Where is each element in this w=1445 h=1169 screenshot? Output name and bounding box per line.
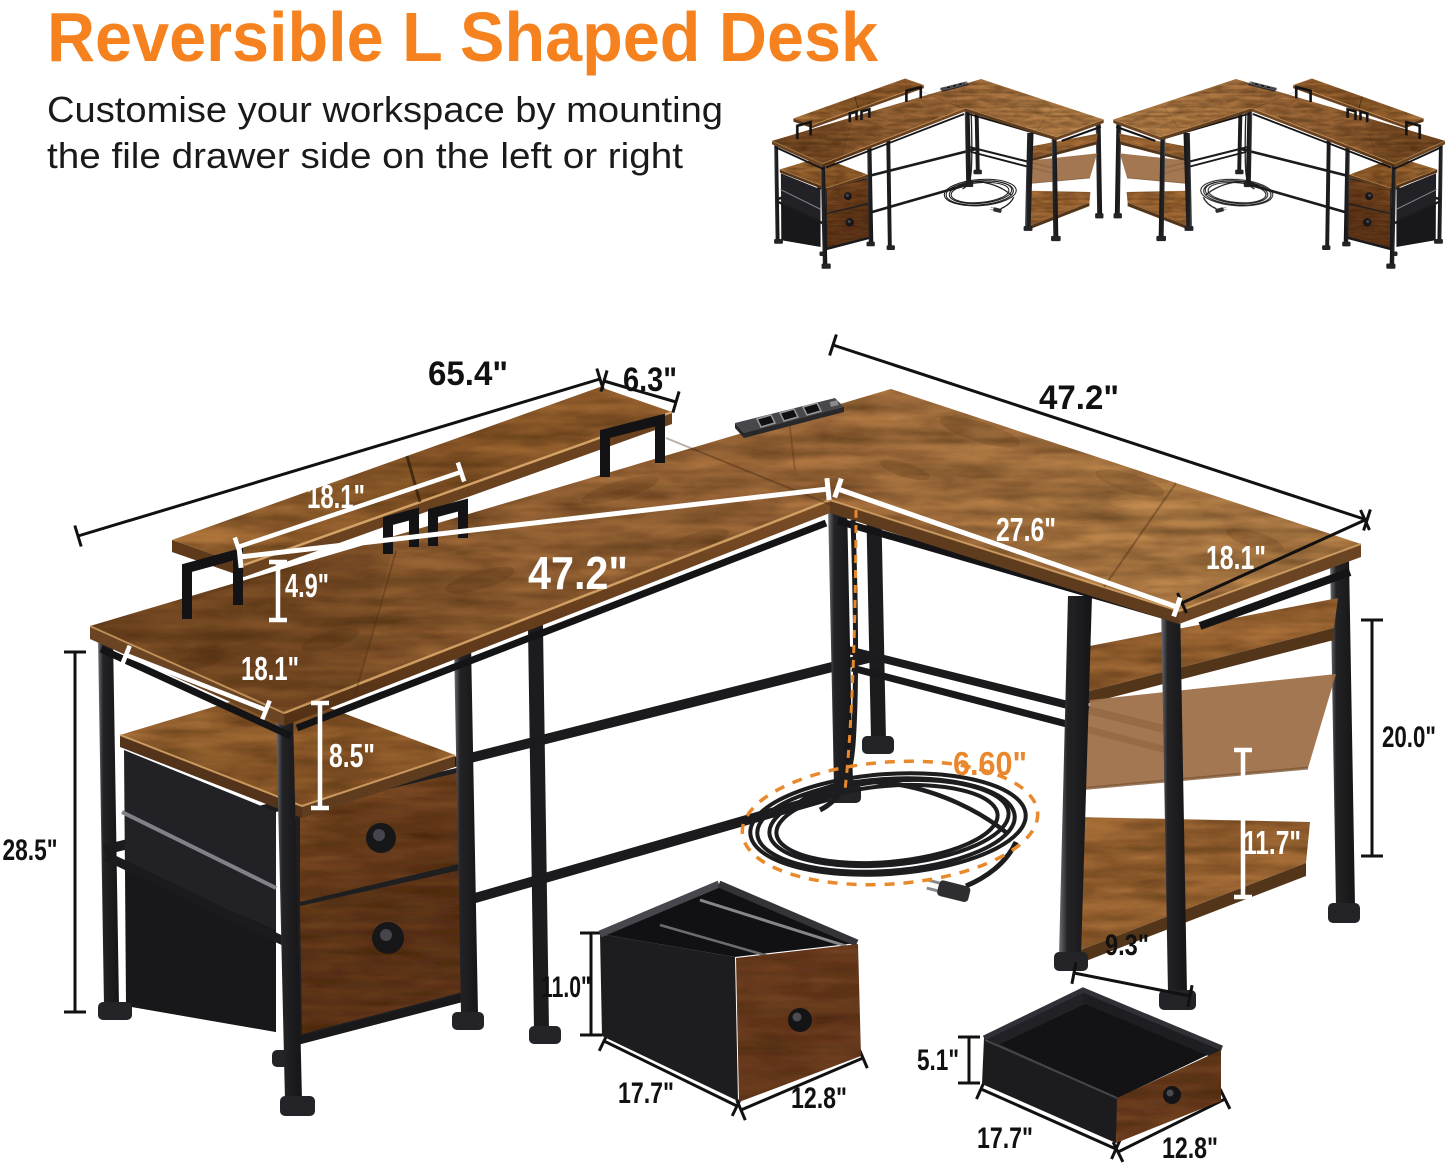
svg-text:18.1": 18.1" (241, 650, 299, 687)
svg-text:65.4": 65.4" (428, 355, 508, 393)
svg-text:12.8": 12.8" (1162, 1132, 1218, 1165)
svg-text:11.0": 11.0" (541, 971, 591, 1004)
svg-text:17.7": 17.7" (977, 1122, 1033, 1155)
svg-text:12.8": 12.8" (791, 1082, 847, 1115)
svg-text:20.0": 20.0" (1382, 721, 1436, 754)
svg-text:47.2": 47.2" (528, 547, 628, 599)
svg-text:28.5": 28.5" (3, 834, 58, 867)
svg-text:Reversible L Shaped Desk: Reversible L Shaped Desk (47, 0, 878, 76)
svg-text:6.3": 6.3" (623, 361, 677, 399)
svg-text:47.2": 47.2" (1039, 379, 1119, 417)
svg-text:6.60": 6.60" (953, 745, 1027, 782)
svg-text:8.5": 8.5" (329, 737, 375, 774)
svg-text:9.3": 9.3" (1105, 929, 1149, 962)
svg-text:the file drawer side on the le: the file drawer side on the left or righ… (47, 135, 683, 176)
svg-text:18.1": 18.1" (1206, 539, 1266, 576)
svg-text:11.7": 11.7" (1243, 824, 1301, 861)
svg-text:17.7": 17.7" (618, 1077, 674, 1110)
svg-text:Customise your workspace by mo: Customise your workspace by mounting (47, 89, 723, 130)
svg-text:5.1": 5.1" (917, 1044, 959, 1077)
svg-text:4.9": 4.9" (285, 567, 329, 604)
svg-text:27.6": 27.6" (996, 511, 1056, 548)
svg-text:18.1": 18.1" (307, 478, 365, 515)
